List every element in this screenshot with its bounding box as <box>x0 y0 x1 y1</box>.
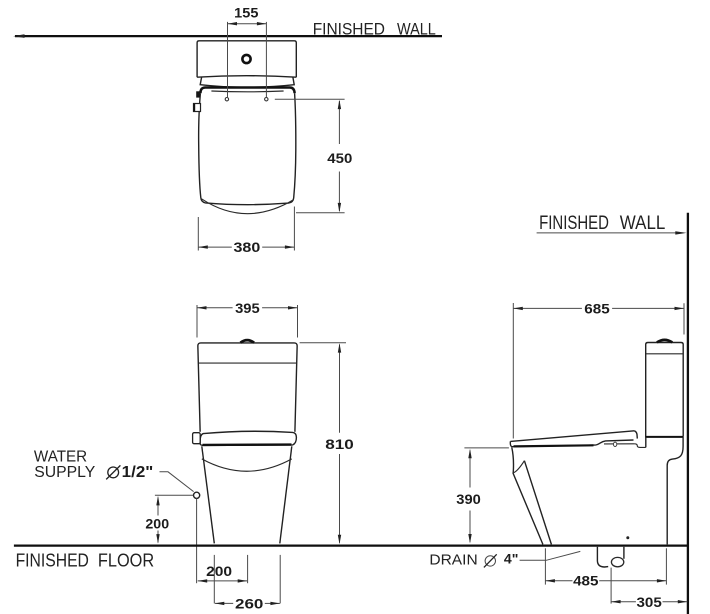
svg-text:FINISHED: FINISHED <box>16 550 89 570</box>
svg-text:450: 450 <box>327 150 352 166</box>
svg-text:260: 260 <box>235 596 264 612</box>
svg-text:SUPPLY: SUPPLY <box>34 464 95 481</box>
svg-text:WALL: WALL <box>620 212 666 234</box>
svg-text:DRAIN: DRAIN <box>429 552 477 568</box>
svg-text:1/2": 1/2" <box>122 464 154 481</box>
svg-text:685: 685 <box>584 301 610 317</box>
svg-text:FINISHED: FINISHED <box>539 212 609 234</box>
svg-text:200: 200 <box>206 563 232 579</box>
svg-text:200: 200 <box>145 516 169 532</box>
svg-text:380: 380 <box>234 239 261 255</box>
svg-text:395: 395 <box>235 300 260 316</box>
svg-text:485: 485 <box>573 573 599 589</box>
svg-text:WATER: WATER <box>34 448 87 465</box>
svg-text:4": 4" <box>504 551 518 567</box>
svg-text:305: 305 <box>637 594 663 610</box>
svg-text:810: 810 <box>325 436 354 452</box>
svg-text:WALL: WALL <box>397 21 436 39</box>
svg-text:FLOOR: FLOOR <box>98 550 154 570</box>
svg-text:390: 390 <box>456 491 481 507</box>
svg-text:155: 155 <box>234 4 258 20</box>
svg-text:FINISHED: FINISHED <box>313 21 385 39</box>
